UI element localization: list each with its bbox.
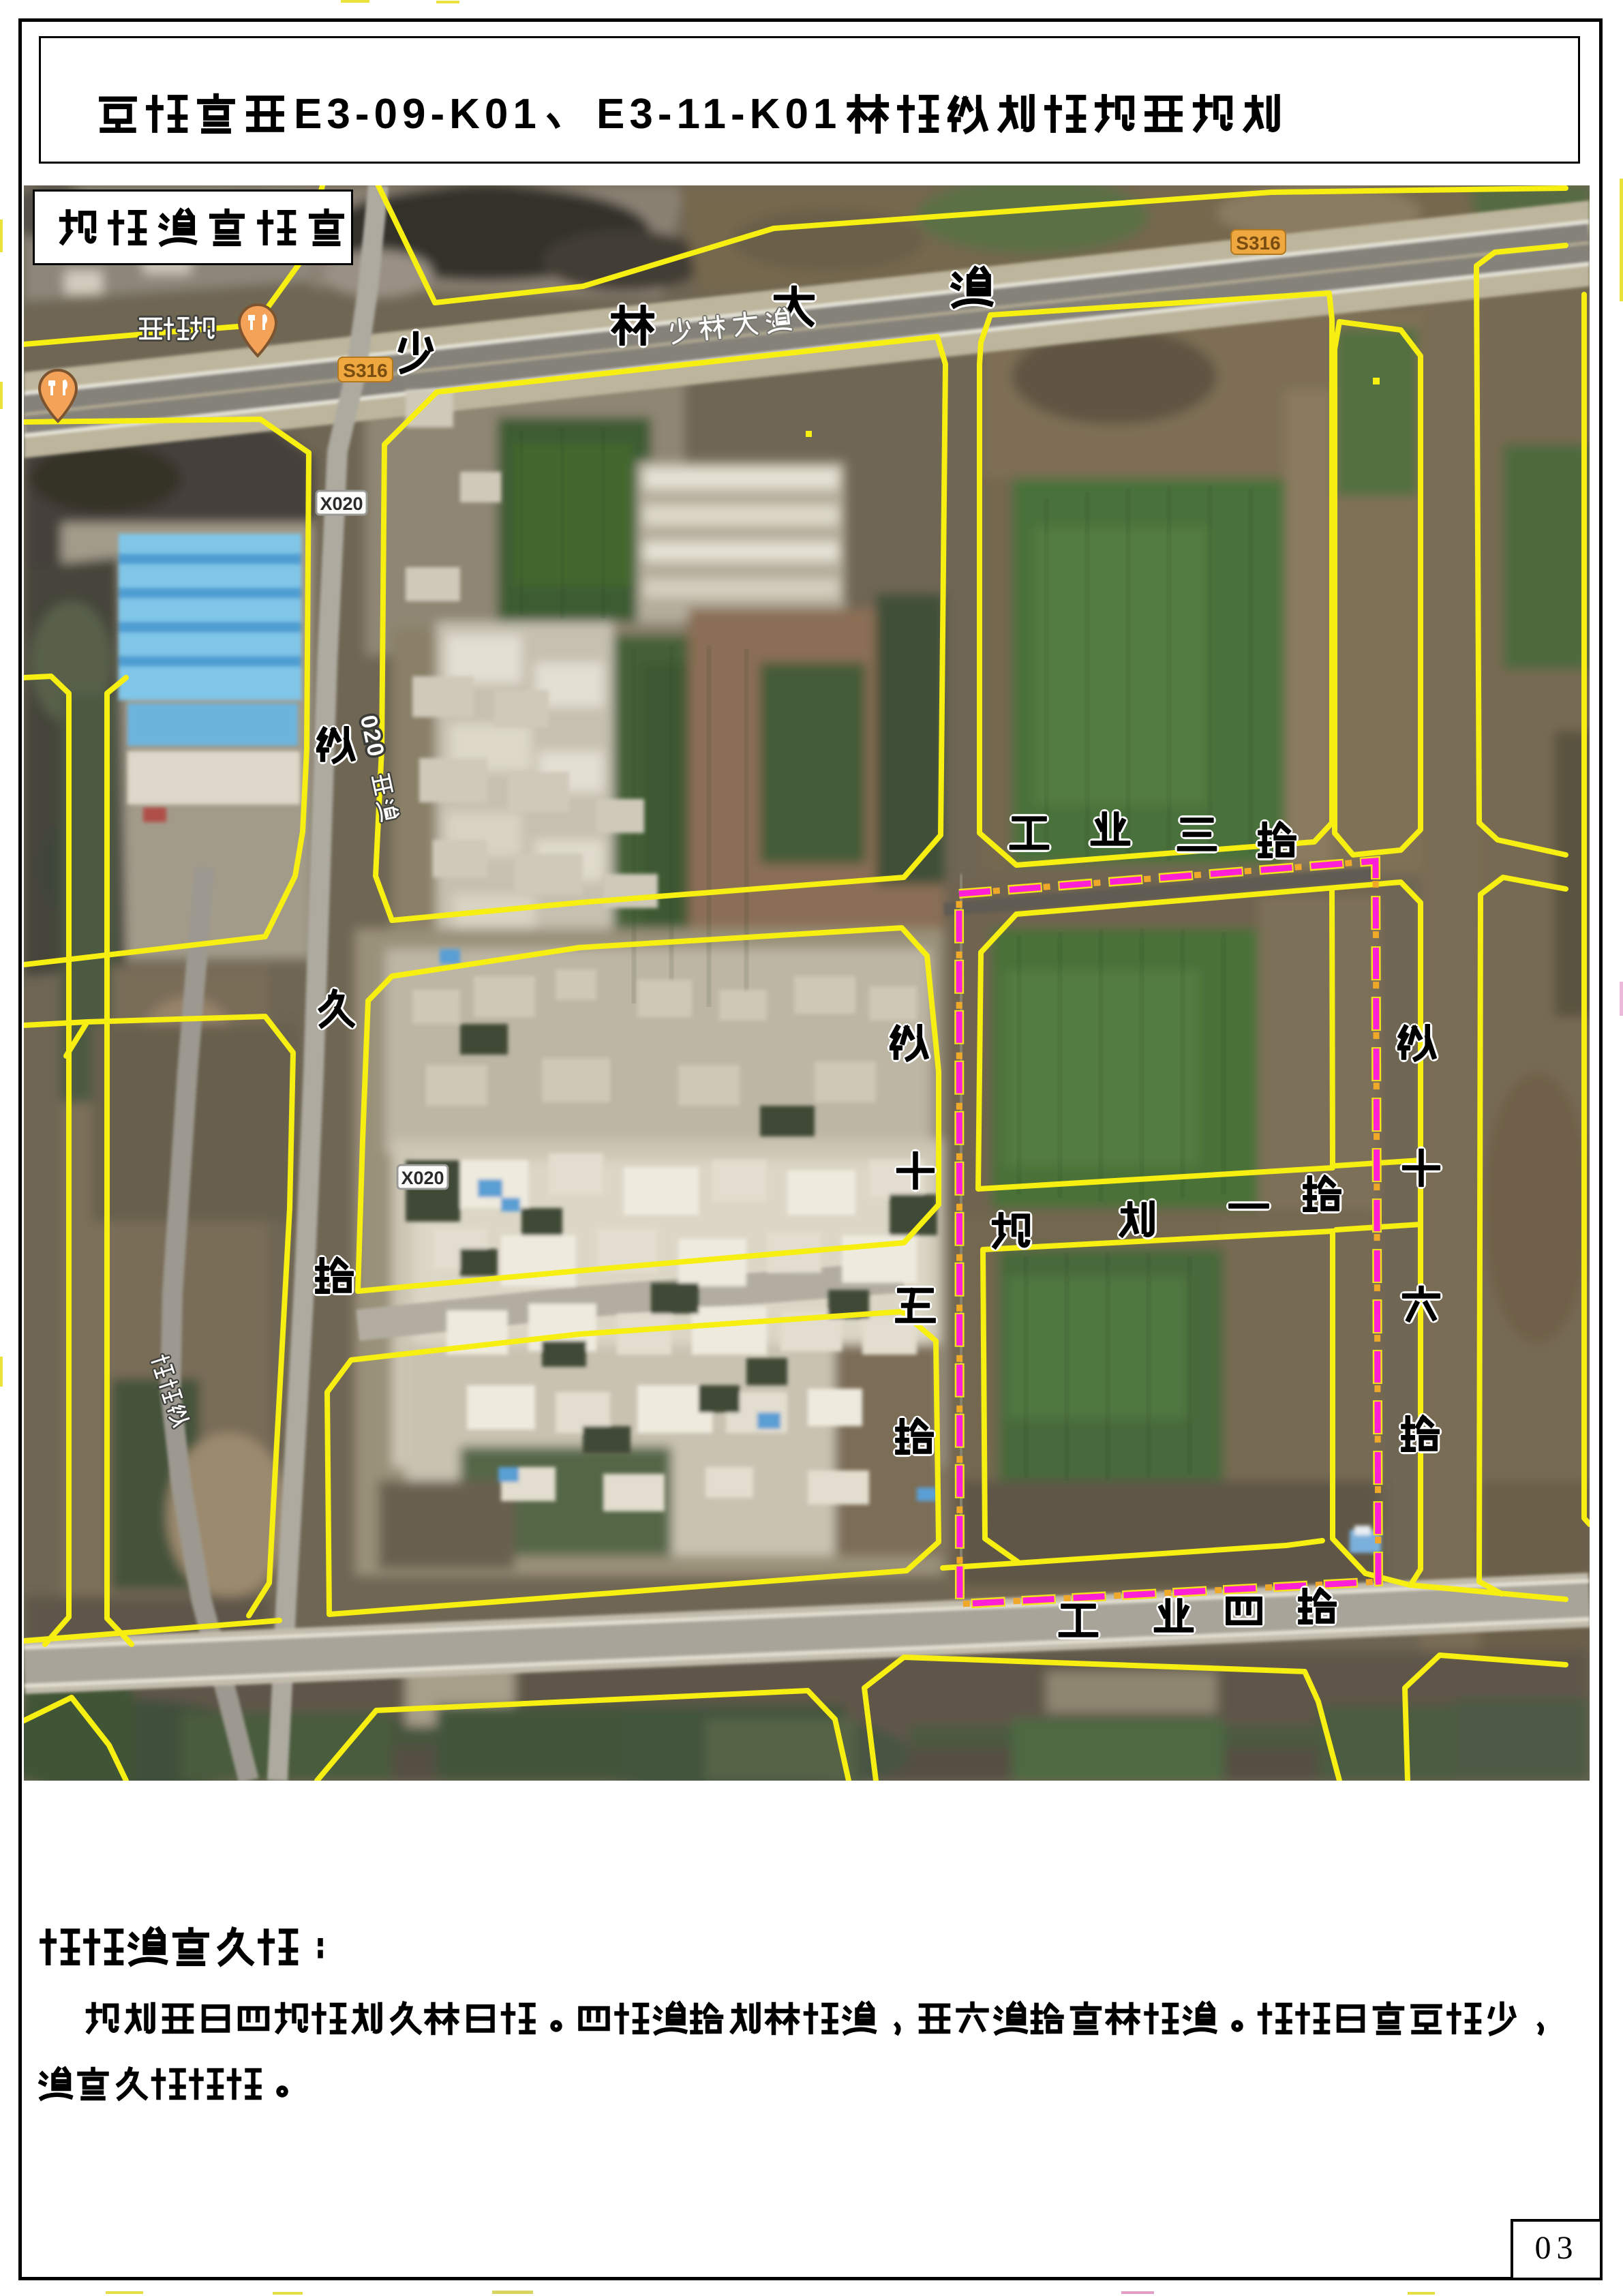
svg-text:X020: X020: [320, 494, 363, 514]
svg-text:S316: S316: [343, 360, 387, 381]
svg-text:S316: S316: [1236, 232, 1280, 254]
svg-text:E3-09-K01: E3-09-K01: [294, 91, 541, 138]
svg-text:E3-11-K01: E3-11-K01: [596, 91, 841, 138]
svg-text:X020: X020: [401, 1168, 444, 1188]
